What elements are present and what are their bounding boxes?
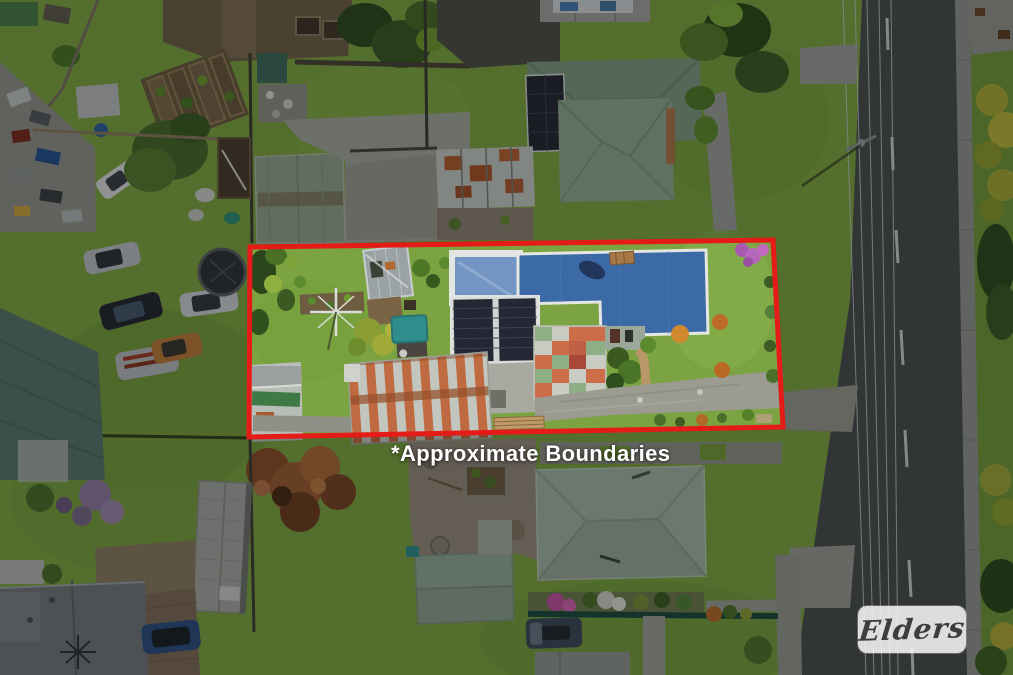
solar-panel-roof bbox=[452, 297, 537, 362]
brand-logo: Elders bbox=[858, 606, 966, 653]
brand-logo-text: Elders bbox=[857, 614, 966, 646]
subject-property bbox=[248, 230, 783, 460]
watermark-text: *Approximate Boundaries bbox=[391, 441, 670, 467]
aerial-photo: *Approximate Boundaries Elders bbox=[0, 0, 1013, 675]
greenhouse bbox=[363, 245, 413, 300]
roof-pallet bbox=[610, 251, 635, 265]
aerial-photo-svg bbox=[0, 0, 1013, 675]
patchwork-roof bbox=[534, 326, 606, 400]
timber-stack bbox=[494, 416, 544, 430]
